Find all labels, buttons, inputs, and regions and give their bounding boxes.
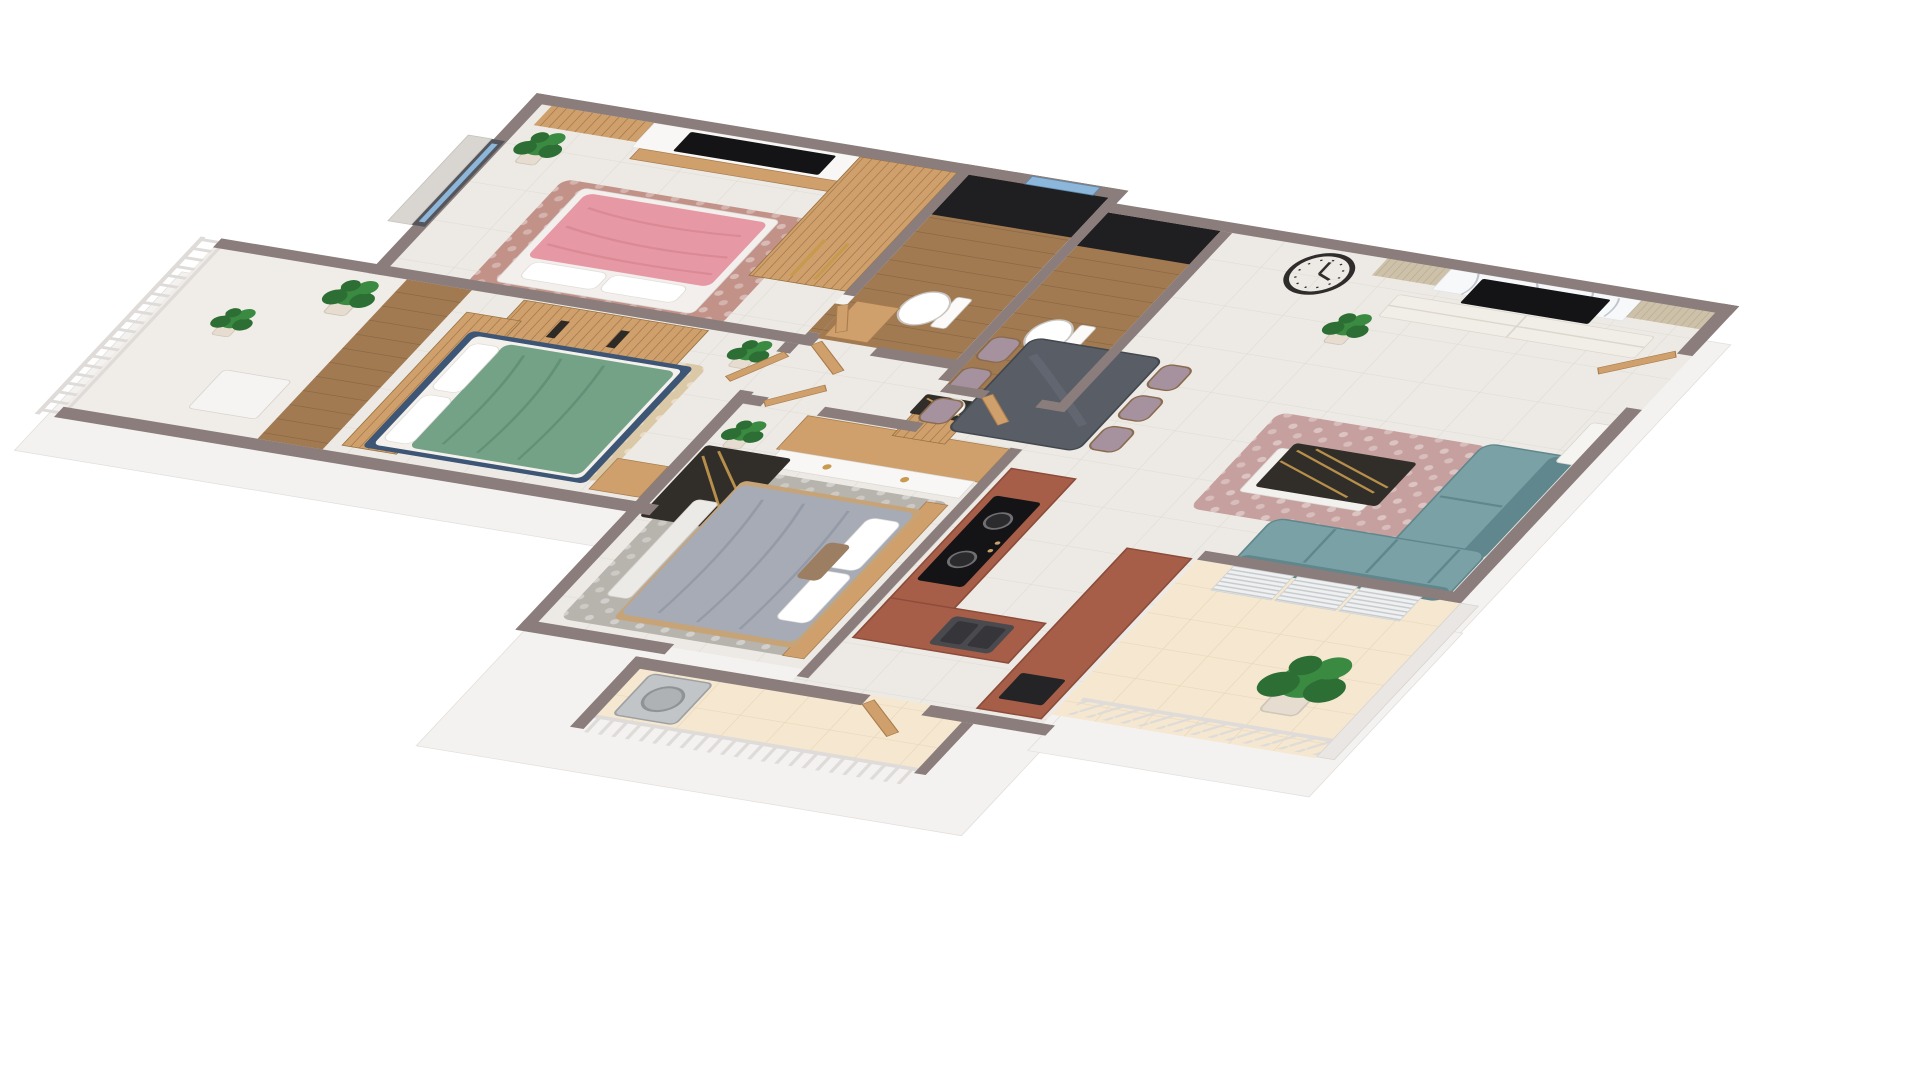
floor-plan-render <box>0 0 1920 1080</box>
door-ensuite[interactable] <box>836 304 849 332</box>
